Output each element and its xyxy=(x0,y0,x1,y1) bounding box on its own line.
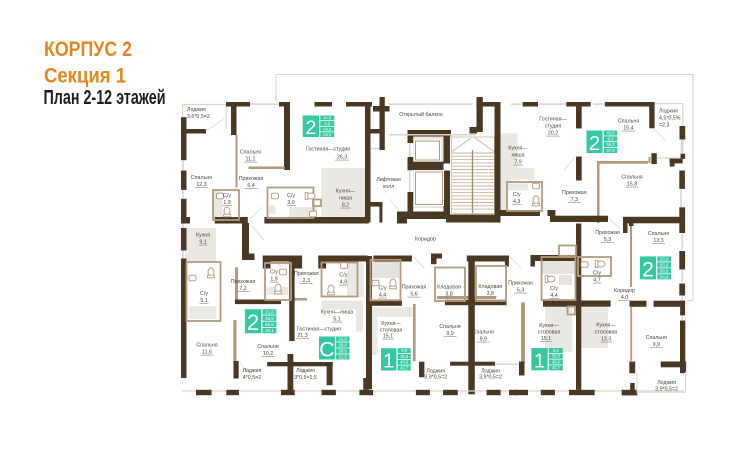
svg-text:9,9: 9,9 xyxy=(553,348,559,353)
svg-text:11,6: 11,6 xyxy=(202,350,212,356)
svg-text:16,9: 16,9 xyxy=(339,337,348,342)
svg-text:4,7: 4,7 xyxy=(593,278,600,284)
svg-text:3,9*0,5=2: 3,9*0,5=2 xyxy=(655,387,678,393)
svg-text:Кухня—: Кухня— xyxy=(336,189,356,195)
svg-text:23,9: 23,9 xyxy=(660,256,669,261)
svg-text:С/у: С/у xyxy=(550,286,558,292)
svg-text:Кухня—ниша: Кухня—ниша xyxy=(321,310,354,316)
svg-text:Спальня: Спальня xyxy=(618,119,639,125)
svg-text:Кухня—: Кухня— xyxy=(539,323,559,329)
svg-text:35,8: 35,8 xyxy=(400,354,409,359)
svg-text:Лоджия: Лоджия xyxy=(657,380,676,386)
svg-text:Спальня: Спальня xyxy=(473,330,494,336)
svg-text:Прихожая: Прихожая xyxy=(294,271,319,277)
svg-text:49,1: 49,1 xyxy=(265,328,274,333)
svg-text:Спальня: Спальня xyxy=(648,231,669,237)
svg-text:Лоджия: Лоджия xyxy=(659,109,678,115)
svg-text:64,8: 64,8 xyxy=(323,126,331,131)
svg-text:Прихожая: Прихожая xyxy=(402,285,427,291)
svg-text:Спальня: Спальня xyxy=(621,175,642,181)
svg-text:15,8: 15,8 xyxy=(627,182,637,188)
svg-text:3,9*0,5=2: 3,9*0,5=2 xyxy=(479,374,502,380)
svg-text:С/у: С/у xyxy=(593,271,601,277)
svg-text:3,9*0,5=2: 3,9*0,5=2 xyxy=(424,374,447,380)
svg-text:Коридор: Коридор xyxy=(614,288,635,294)
svg-text:15,4: 15,4 xyxy=(623,126,633,132)
svg-text:Коридор: Коридор xyxy=(415,237,436,243)
svg-text:Прихожая: Прихожая xyxy=(595,230,620,236)
svg-text:студия: студия xyxy=(545,124,562,130)
svg-text:5,1: 5,1 xyxy=(333,317,340,323)
svg-text:59,6: 59,6 xyxy=(660,268,669,273)
svg-text:63,6: 63,6 xyxy=(660,262,669,267)
svg-text:Гостиная—студия: Гостиная—студия xyxy=(297,327,341,333)
svg-text:1: 1 xyxy=(383,350,394,373)
svg-text:Прихожая: Прихожая xyxy=(562,190,587,196)
svg-text:2: 2 xyxy=(589,132,601,155)
svg-text:42,7: 42,7 xyxy=(400,365,409,370)
svg-text:9,9: 9,9 xyxy=(446,331,453,337)
svg-text:7,3: 7,3 xyxy=(571,197,578,203)
svg-text:65,3: 65,3 xyxy=(607,142,616,147)
svg-text:Открытый балкон: Открытый балкон xyxy=(399,111,443,118)
svg-text:4,4: 4,4 xyxy=(379,293,386,299)
svg-text:Лоджия: Лоджия xyxy=(187,107,206,113)
svg-text:4,9: 4,9 xyxy=(340,280,347,286)
svg-text:Лоджия: Лоджия xyxy=(243,368,262,374)
svg-text:Кладовая: Кладовая xyxy=(478,284,502,290)
svg-text:С: С xyxy=(319,339,334,362)
svg-text:30,0: 30,0 xyxy=(339,348,348,353)
svg-text:Кладовая: Кладовая xyxy=(437,285,461,291)
svg-text:4*0,5=2: 4*0,5=2 xyxy=(243,375,261,381)
svg-text:С/у: С/у xyxy=(513,192,521,198)
svg-text:8,2: 8,2 xyxy=(342,203,349,209)
svg-text:26,3: 26,3 xyxy=(337,155,347,161)
svg-text:67,5: 67,5 xyxy=(607,148,616,153)
svg-text:Прихожая: Прихожая xyxy=(239,176,264,182)
svg-text:20,2: 20,2 xyxy=(548,131,558,137)
svg-text:15,1: 15,1 xyxy=(541,336,551,342)
svg-text:7,9: 7,9 xyxy=(514,160,521,166)
svg-text:5,6: 5,6 xyxy=(410,292,417,298)
svg-text:5,1: 5,1 xyxy=(200,298,207,304)
svg-text:столовая: столовая xyxy=(538,330,561,336)
svg-text:31,5: 31,5 xyxy=(339,354,348,359)
svg-text:9,9: 9,9 xyxy=(401,348,407,353)
svg-text:КОРПУС 2: КОРПУС 2 xyxy=(44,37,132,61)
svg-text:2,3: 2,3 xyxy=(303,278,310,284)
svg-text:3,6*0,5=2: 3,6*0,5=2 xyxy=(187,114,210,120)
svg-text:Лоджия: Лоджия xyxy=(296,368,315,374)
svg-text:9,9: 9,9 xyxy=(480,337,487,343)
svg-text:Спальня: Спальня xyxy=(646,335,667,341)
svg-text:С/у: С/у xyxy=(200,291,208,297)
svg-text:Спальня: Спальня xyxy=(240,150,261,156)
svg-text:12,3: 12,3 xyxy=(196,182,206,188)
svg-text:9,1: 9,1 xyxy=(199,240,206,246)
svg-text:40,8: 40,8 xyxy=(400,360,409,365)
svg-text:2: 2 xyxy=(247,310,259,335)
svg-text:ниша: ниша xyxy=(339,196,352,202)
svg-text:43,6: 43,6 xyxy=(607,130,616,135)
svg-text:3,8: 3,8 xyxy=(487,291,494,297)
svg-text:Гостиная—: Гостиная— xyxy=(539,117,567,123)
svg-text:С/у: С/у xyxy=(270,270,278,276)
svg-text:1,9: 1,9 xyxy=(223,200,230,206)
svg-text:64,4: 64,4 xyxy=(660,274,669,279)
svg-text:Кухня—: Кухня— xyxy=(508,146,528,152)
svg-text:7,2: 7,2 xyxy=(239,286,246,292)
svg-text:3,8: 3,8 xyxy=(445,292,452,298)
svg-text:План 2-12 этажей: План 2-12 этажей xyxy=(44,87,166,109)
svg-text:10,2: 10,2 xyxy=(263,351,273,357)
svg-text:40,8: 40,8 xyxy=(552,359,561,364)
svg-text:С/у: С/у xyxy=(287,193,295,199)
svg-text:Секция 1: Секция 1 xyxy=(44,64,126,88)
svg-text:15,1: 15,1 xyxy=(383,334,393,340)
svg-text:11,1: 11,1 xyxy=(246,157,256,163)
svg-text:4,3: 4,3 xyxy=(513,199,520,205)
svg-text:4,0: 4,0 xyxy=(621,295,628,301)
svg-text:8,3: 8,3 xyxy=(608,136,614,141)
svg-text:4,4: 4,4 xyxy=(550,293,557,299)
svg-text:13,3: 13,3 xyxy=(653,238,663,244)
svg-text:35,8: 35,8 xyxy=(552,354,561,359)
svg-text:8,3: 8,3 xyxy=(325,121,330,126)
svg-text:1: 1 xyxy=(534,349,545,372)
svg-text:13,3: 13,3 xyxy=(601,337,611,343)
svg-text:41,5: 41,5 xyxy=(323,115,331,120)
svg-text:4,5*0,5%: 4,5*0,5% xyxy=(659,116,681,122)
svg-text:Гостиная—студия: Гостиная—студия xyxy=(306,147,350,153)
svg-text:28,4: 28,4 xyxy=(339,343,348,348)
svg-text:2: 2 xyxy=(642,258,654,281)
svg-text:45,9: 45,9 xyxy=(265,322,274,327)
svg-text:45,9: 45,9 xyxy=(265,316,274,321)
svg-text:Прихожая: Прихожая xyxy=(231,279,256,285)
svg-text:Кухня—: Кухня— xyxy=(381,321,401,327)
svg-text:Спальня: Спальня xyxy=(257,344,278,350)
svg-text:Спальня: Спальня xyxy=(191,175,212,181)
svg-text:Кухня—: Кухня— xyxy=(596,323,616,329)
svg-text:9,9: 9,9 xyxy=(653,342,660,348)
svg-text:Лифтовая: Лифтовая xyxy=(376,177,401,183)
svg-text:холл: холл xyxy=(383,184,395,190)
svg-text:Спальня: Спальня xyxy=(196,343,217,349)
svg-text:6,4: 6,4 xyxy=(247,183,254,189)
svg-text:5,3: 5,3 xyxy=(604,237,611,243)
svg-text:С/у: С/у xyxy=(223,193,231,199)
svg-text:2: 2 xyxy=(305,117,316,139)
svg-text:Спальня: Спальня xyxy=(439,324,460,330)
svg-text:5,3: 5,3 xyxy=(517,288,524,294)
svg-text:С/у: С/у xyxy=(339,273,347,279)
svg-text:столовая: столовая xyxy=(595,330,618,336)
svg-text:66,8: 66,8 xyxy=(323,132,331,137)
svg-text:3*0,5=1,5: 3*0,5=1,5 xyxy=(294,375,317,381)
svg-text:1,9: 1,9 xyxy=(270,277,277,283)
svg-text:3,0: 3,0 xyxy=(287,200,294,206)
svg-text:Прихожая: Прихожая xyxy=(508,281,533,287)
svg-text:Кухня: Кухня xyxy=(196,233,210,239)
svg-text:21,3: 21,3 xyxy=(297,333,307,339)
svg-text:42,7: 42,7 xyxy=(552,365,561,370)
svg-text:=2,3: =2,3 xyxy=(659,123,670,129)
svg-text:ниша: ниша xyxy=(511,153,524,159)
svg-text:21,6: 21,6 xyxy=(265,310,274,315)
svg-text:С/у: С/у xyxy=(379,286,387,292)
